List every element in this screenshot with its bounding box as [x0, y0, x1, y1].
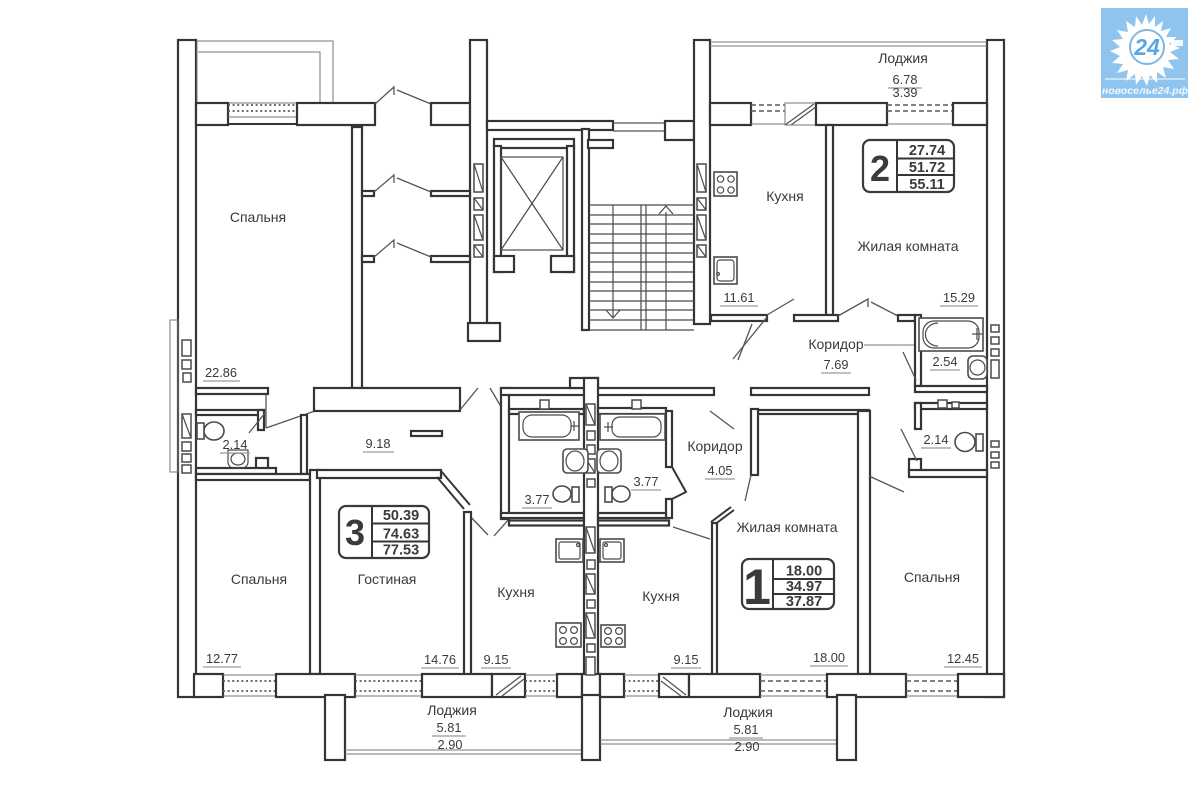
svg-text:2.14: 2.14	[924, 432, 949, 447]
svg-text:9.18: 9.18	[366, 436, 391, 451]
svg-text:7.69: 7.69	[824, 357, 849, 372]
svg-text:27.74: 27.74	[909, 143, 945, 159]
svg-text:34.97: 34.97	[786, 579, 822, 595]
svg-text:11.61: 11.61	[723, 290, 754, 305]
svg-text:Лоджия: Лоджия	[427, 702, 477, 718]
svg-text:Жилая комната: Жилая комната	[736, 519, 837, 535]
svg-text:Лоджия: Лоджия	[723, 704, 773, 720]
svg-text:4.05: 4.05	[708, 463, 733, 478]
svg-text:55.11: 55.11	[909, 177, 945, 193]
svg-text:14.76: 14.76	[424, 652, 456, 667]
svg-text:2.90: 2.90	[438, 737, 463, 752]
svg-text:Кухня: Кухня	[642, 588, 679, 604]
svg-text:5.81: 5.81	[734, 722, 759, 737]
svg-text:3: 3	[345, 512, 365, 553]
svg-text:3.39: 3.39	[893, 85, 918, 100]
svg-text:12.45: 12.45	[947, 651, 979, 666]
svg-text:5.81: 5.81	[437, 720, 462, 735]
svg-text:Гостиная: Гостиная	[358, 571, 417, 587]
svg-text:15.29: 15.29	[943, 290, 975, 305]
svg-text:3.77: 3.77	[634, 474, 659, 489]
svg-text:77.53: 77.53	[383, 543, 419, 559]
svg-text:Лоджия: Лоджия	[878, 50, 928, 66]
svg-text:50.39: 50.39	[383, 508, 419, 524]
svg-text:Коридор: Коридор	[808, 336, 864, 352]
svg-text:74.63: 74.63	[383, 527, 419, 543]
svg-text:новоселье24.рф: новоселье24.рф	[1102, 85, 1188, 97]
svg-text:12.77: 12.77	[206, 651, 238, 666]
svg-text:2.90: 2.90	[735, 739, 760, 754]
svg-text:Спальня: Спальня	[231, 571, 287, 587]
svg-text:9.15: 9.15	[484, 652, 509, 667]
svg-text:Коридор: Коридор	[687, 438, 743, 454]
svg-text:2: 2	[870, 148, 890, 189]
svg-text:9.15: 9.15	[674, 652, 699, 667]
svg-text:3.77: 3.77	[525, 492, 550, 507]
svg-text:24: 24	[1133, 34, 1160, 60]
svg-text:2.54: 2.54	[933, 354, 958, 369]
svg-text:Кухня: Кухня	[497, 584, 534, 600]
svg-text:Жилая комната: Жилая комната	[857, 238, 958, 254]
svg-text:22.86: 22.86	[205, 365, 237, 380]
svg-text:18.00: 18.00	[813, 650, 845, 665]
svg-text:Спальня: Спальня	[230, 209, 286, 225]
svg-text:2.14: 2.14	[223, 437, 248, 452]
svg-text:18.00: 18.00	[786, 564, 822, 580]
svg-text:37.87: 37.87	[786, 594, 822, 610]
svg-text:1: 1	[743, 559, 771, 615]
svg-text:Спальня: Спальня	[904, 569, 960, 585]
svg-text:51.72: 51.72	[909, 160, 945, 176]
svg-text:Кухня: Кухня	[766, 188, 803, 204]
